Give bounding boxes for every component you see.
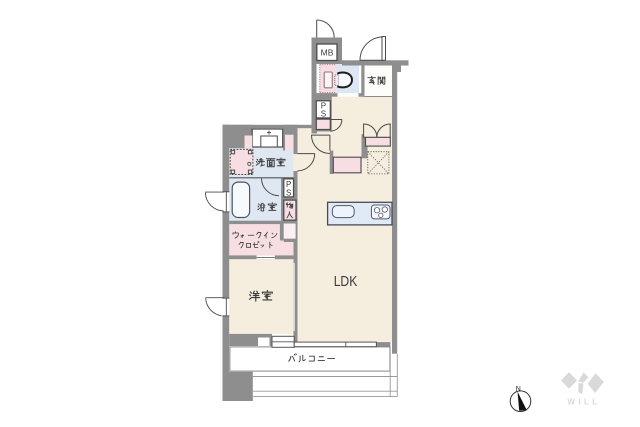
svg-text:S: S — [286, 188, 291, 197]
svg-text:N: N — [516, 386, 521, 393]
svg-text:WILL: WILL — [567, 398, 600, 407]
svg-text:MB: MB — [321, 48, 334, 58]
svg-text:S: S — [321, 110, 326, 119]
svg-text:LDK: LDK — [334, 274, 358, 290]
